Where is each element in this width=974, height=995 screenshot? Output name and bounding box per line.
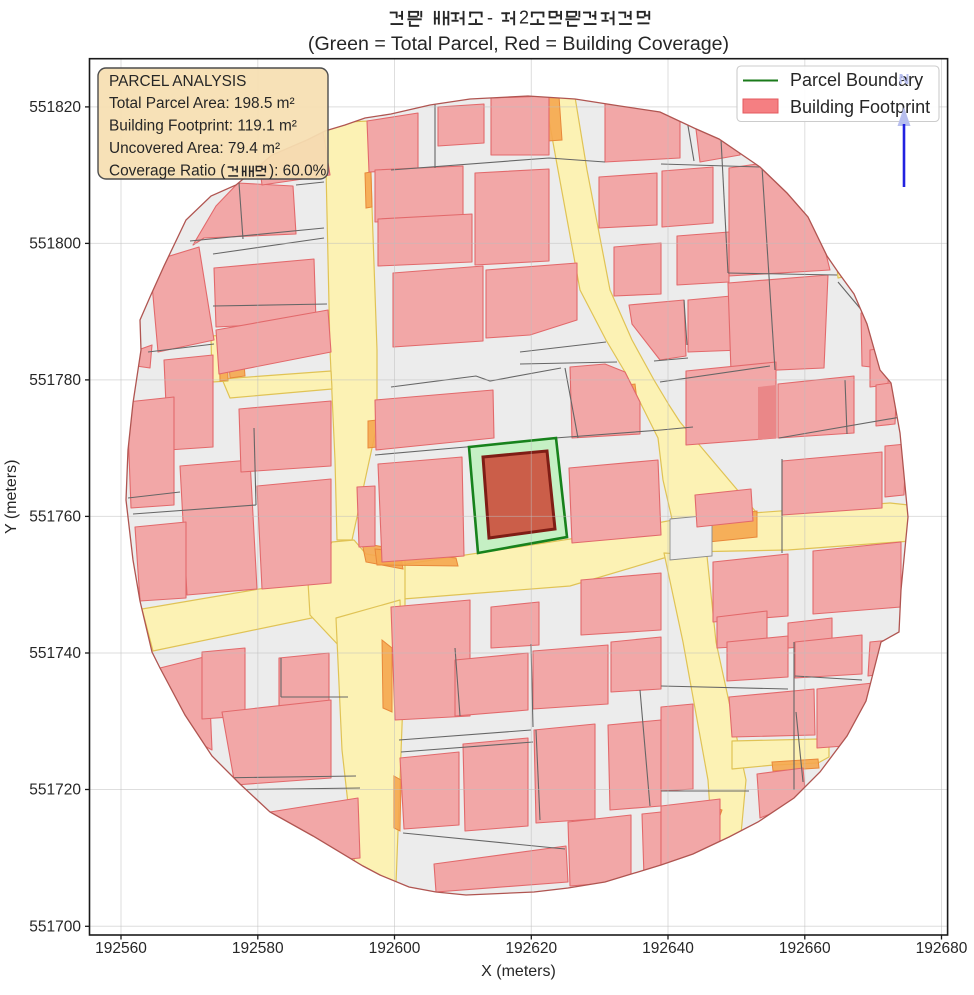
svg-text:551780: 551780 xyxy=(29,372,81,389)
svg-text:192560: 192560 xyxy=(95,940,147,957)
svg-text:551800: 551800 xyxy=(29,235,81,252)
svg-text:): 60.0%: ): 60.0% xyxy=(269,163,327,180)
svg-text:Coverage Ratio (: Coverage Ratio ( xyxy=(109,163,226,180)
svg-text:551760: 551760 xyxy=(29,508,81,525)
svg-text:-: - xyxy=(487,8,493,28)
svg-text:192680: 192680 xyxy=(916,940,968,957)
svg-text:Building Footprint: Building Footprint xyxy=(790,97,930,117)
svg-text:(Green = Total Parcel, Red = B: (Green = Total Parcel, Red = Building Co… xyxy=(308,33,729,55)
svg-text:192580: 192580 xyxy=(232,940,284,957)
svg-text:Total Parcel Area: 198.5 m²: Total Parcel Area: 198.5 m² xyxy=(109,95,295,112)
svg-text:Building Footprint: 119.1 m²: Building Footprint: 119.1 m² xyxy=(109,118,297,135)
svg-text:192620: 192620 xyxy=(505,940,557,957)
svg-text:192660: 192660 xyxy=(779,940,831,957)
svg-text:N: N xyxy=(899,71,910,88)
svg-text:551740: 551740 xyxy=(29,645,81,662)
svg-text:551820: 551820 xyxy=(29,99,81,116)
svg-text:551720: 551720 xyxy=(29,782,81,799)
svg-text:X (meters): X (meters) xyxy=(481,963,556,980)
svg-text:2: 2 xyxy=(519,8,529,28)
svg-text:Uncovered Area: 79.4 m²: Uncovered Area: 79.4 m² xyxy=(109,140,280,157)
svg-text:551700: 551700 xyxy=(29,918,81,935)
svg-text:192640: 192640 xyxy=(642,940,694,957)
svg-text:192600: 192600 xyxy=(369,940,421,957)
svg-text:PARCEL ANALYSIS: PARCEL ANALYSIS xyxy=(109,73,246,90)
svg-text:Y (meters): Y (meters) xyxy=(3,460,20,534)
